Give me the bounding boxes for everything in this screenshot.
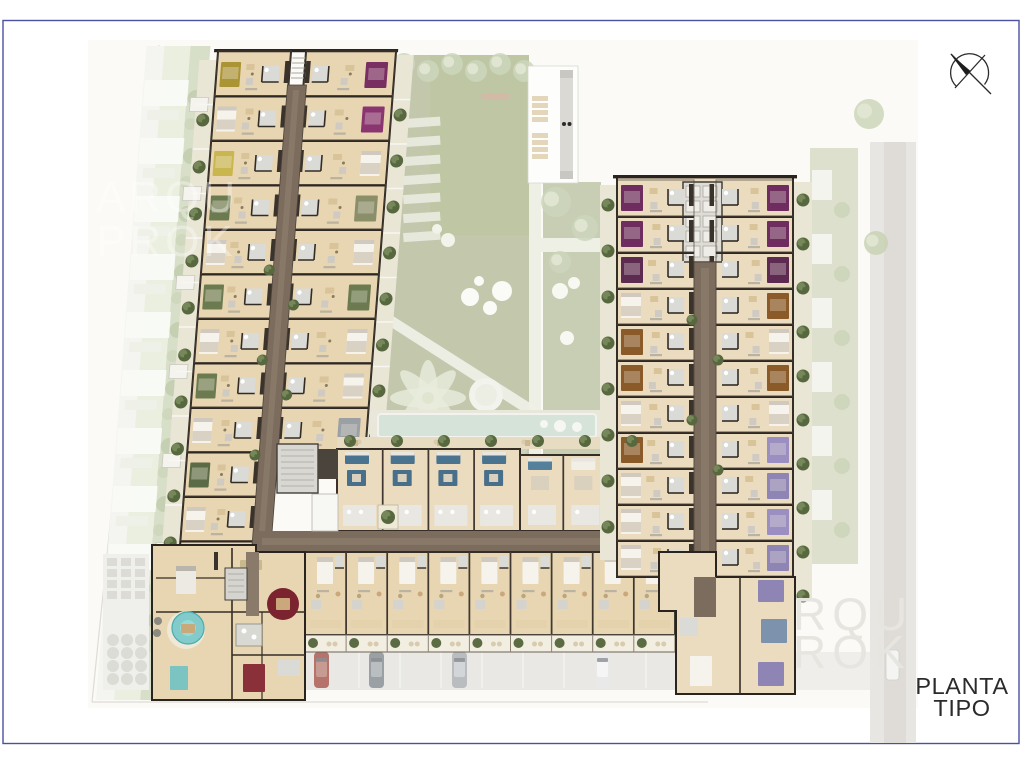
svg-text:ARQU: ARQU	[96, 173, 239, 222]
svg-text:PROK: PROK	[96, 217, 237, 266]
svg-text:ROK: ROK	[793, 626, 911, 678]
svg-text:TIPO: TIPO	[933, 695, 990, 721]
